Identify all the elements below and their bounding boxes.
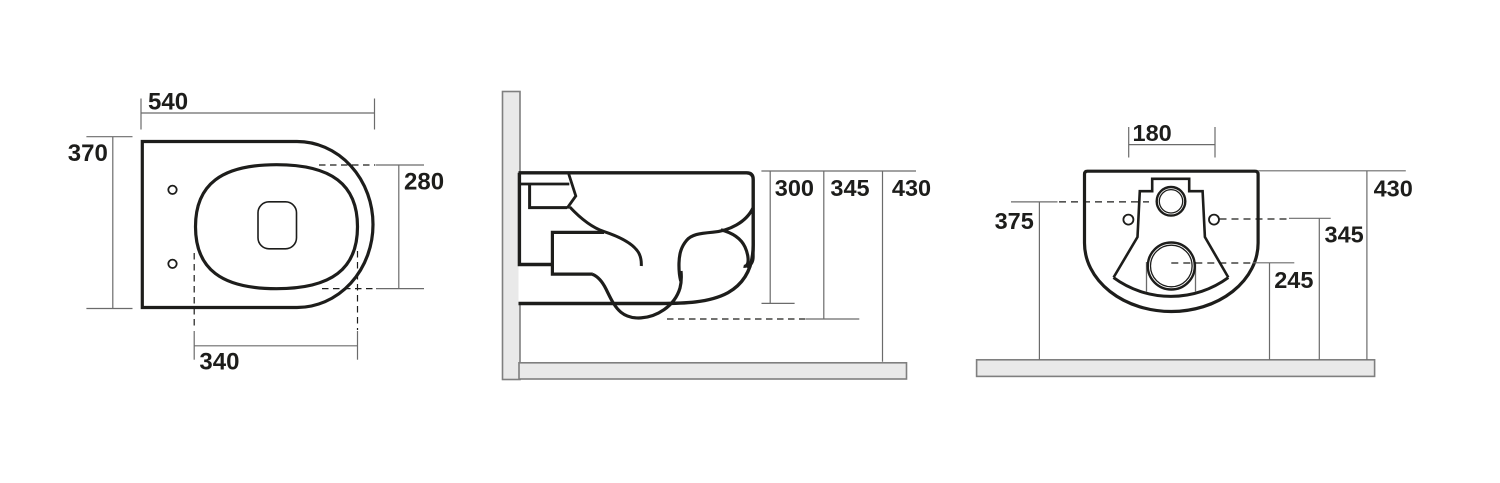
svg-text:430: 430: [892, 175, 931, 201]
svg-text:375: 375: [995, 208, 1034, 234]
svg-text:300: 300: [775, 175, 814, 201]
svg-text:370: 370: [68, 140, 108, 167]
svg-text:180: 180: [1133, 120, 1172, 146]
svg-text:345: 345: [830, 175, 869, 201]
svg-text:540: 540: [148, 88, 188, 115]
svg-text:280: 280: [404, 169, 444, 196]
svg-text:430: 430: [1374, 175, 1413, 201]
svg-text:245: 245: [1274, 267, 1313, 293]
svg-text:340: 340: [199, 349, 239, 376]
svg-text:345: 345: [1325, 222, 1364, 248]
